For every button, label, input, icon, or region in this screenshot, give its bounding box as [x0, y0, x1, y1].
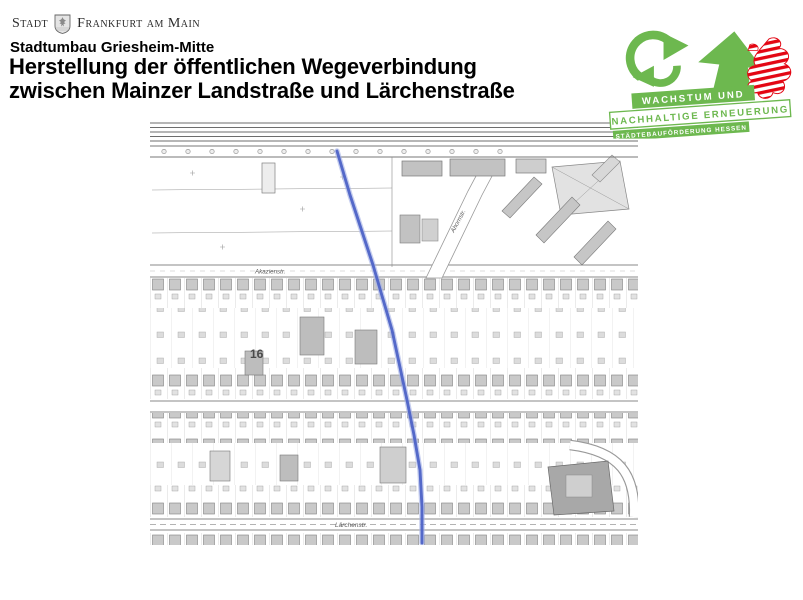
- street-akazienstr: [150, 265, 638, 277]
- wachstum-erneuerung-logo: [604, 27, 796, 139]
- label-akazienstr: Akazienstr.: [254, 269, 285, 276]
- city-logo-prefix: Stadt: [12, 16, 48, 32]
- footer-logo-row: Bundesministerium für Wohnen, Stadtentwi…: [0, 540, 803, 600]
- title-line-2: zwischen Mainzer Landstraße und Lärchens…: [9, 78, 515, 103]
- poster-page: WACHSTUM UND NACHHALTIGE ERNEUERUNG STÄD…: [0, 0, 803, 600]
- site-plan-map: Akazienstr. Lärchenstr. Ahornstr. 16: [150, 115, 638, 545]
- street-laerchenstr: [150, 519, 638, 530]
- label-laerchenstr: Lärchenstr.: [335, 522, 367, 529]
- title-line-1: Herstellung der öffentlichen Wegeverbind…: [9, 54, 477, 79]
- page-title: Herstellung der öffentlichen Wegeverbind…: [9, 55, 515, 102]
- frankfurt-crest-icon: [54, 14, 71, 34]
- label-block-16: 16: [250, 347, 264, 361]
- large-building-southeast: [548, 461, 614, 515]
- city-logo-name: Frankfurt am Main: [77, 16, 200, 32]
- street-middle-lower: [150, 401, 638, 412]
- frankfurt-city-logo: Stadt Frankfurt am Main: [12, 14, 200, 34]
